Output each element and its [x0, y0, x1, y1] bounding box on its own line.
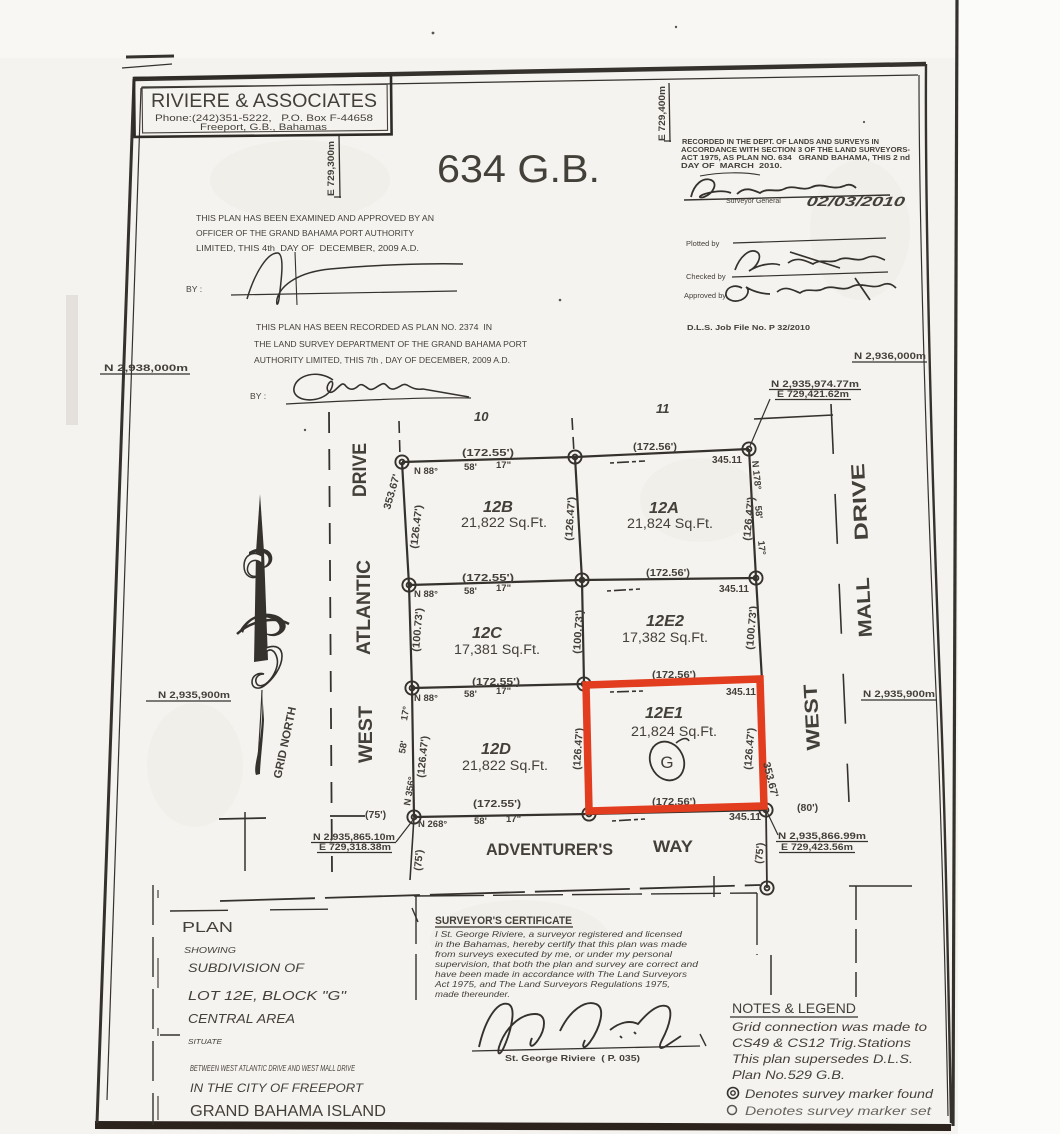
svg-text:E 729,423.56m: E 729,423.56m — [781, 842, 853, 853]
svg-text:345.11: 345.11 — [719, 583, 749, 595]
svg-text:Grid connection was made to: Grid connection was made to — [732, 1022, 928, 1034]
svg-text:SHOWING: SHOWING — [184, 946, 236, 955]
svg-text:St. George Riviere ( P. 035): St. George Riviere ( P. 035) — [505, 1053, 640, 1063]
svg-text:PLAN: PLAN — [182, 919, 233, 936]
svg-text:17": 17" — [496, 686, 511, 697]
svg-text:10: 10 — [474, 409, 489, 424]
svg-text:Approved by: Approved by — [684, 291, 726, 300]
svg-text:N 2,935,900m: N 2,935,900m — [158, 690, 230, 701]
svg-text:E 729,300m: E 729,300m — [326, 141, 336, 196]
svg-text:11: 11 — [656, 401, 670, 416]
svg-text:634 G.B.: 634 G.B. — [437, 148, 600, 191]
svg-text:N 2,935,900m: N 2,935,900m — [863, 689, 935, 700]
svg-text:D.L.S. Job File No. P 32/2010: D.L.S. Job File No. P 32/2010 — [687, 323, 810, 332]
svg-text:BETWEEN WEST ATLANTIC DRIVE AN: BETWEEN WEST ATLANTIC DRIVE AND WEST MAL… — [190, 1064, 355, 1073]
svg-text:This plan supersedes D.L.S.: This plan supersedes D.L.S. — [732, 1054, 913, 1066]
svg-text:WEST: WEST — [801, 683, 825, 750]
svg-text:Checked by: Checked by — [686, 272, 726, 281]
svg-text:58': 58' — [464, 462, 477, 473]
svg-text:ATLANTIC: ATLANTIC — [354, 560, 375, 655]
svg-text:ACT 1975, AS PLAN NO. 634 GR: ACT 1975, AS PLAN NO. 634 GRAND BAHAMA, … — [681, 155, 910, 162]
svg-text:58': 58' — [752, 505, 764, 519]
svg-text:AUTHORITY LIMITED, THIS 7th ,: AUTHORITY LIMITED, THIS 7th , DAY OF DEC… — [254, 355, 510, 365]
svg-text:THE LAND SURVEY DEPARTMENT OF: THE LAND SURVEY DEPARTMENT OF THE GRAND … — [254, 339, 528, 349]
svg-text:BY :: BY : — [250, 391, 266, 401]
svg-text:LIMITED, THIS 4th DAY OF DEC: LIMITED, THIS 4th DAY OF DECEMBER, 2009 … — [196, 243, 419, 253]
svg-text:DRIVE: DRIVE — [350, 443, 371, 497]
svg-text:BY :: BY : — [186, 284, 202, 294]
svg-text:N 88°: N 88° — [414, 466, 438, 477]
svg-text:ACCORDANCE WITH SECTION 3 OF T: ACCORDANCE WITH SECTION 3 OF THE LAND SU… — [681, 147, 911, 154]
svg-text:21,822 Sq.Ft.: 21,822 Sq.Ft. — [462, 758, 548, 773]
svg-text:58': 58' — [397, 740, 410, 755]
svg-text:E 729,318.38m: E 729,318.38m — [319, 842, 391, 853]
svg-text:12D: 12D — [481, 741, 511, 758]
svg-text:N 2,936,000m: N 2,936,000m — [854, 351, 926, 362]
svg-text:CS49 & CS12 Trig.Stations: CS49 & CS12 Trig.Stations — [732, 1038, 911, 1050]
svg-text:02/03/2010: 02/03/2010 — [805, 194, 906, 209]
svg-text:12A: 12A — [649, 500, 679, 517]
svg-text:(80'): (80') — [797, 802, 818, 814]
svg-text:LOT 12E, BLOCK "G": LOT 12E, BLOCK "G" — [188, 988, 348, 1003]
svg-text:N 268°: N 268° — [418, 819, 447, 830]
svg-text:MALL: MALL — [853, 576, 877, 637]
svg-text:RIVIERE & ASSOCIATES: RIVIERE & ASSOCIATES — [151, 91, 377, 112]
svg-text:OFFICER OF THE GRAND BAHAMA PO: OFFICER OF THE GRAND BAHAMA PORT AUTHORI… — [196, 228, 414, 238]
svg-text:RECORDED IN THE DEPT. OF LANDS: RECORDED IN THE DEPT. OF LANDS AND SURVE… — [682, 139, 879, 146]
svg-text:SITUATE: SITUATE — [188, 1037, 223, 1046]
svg-text:THIS PLAN HAS BEEN RECORDED AS: THIS PLAN HAS BEEN RECORDED AS PLAN NO. … — [256, 322, 492, 332]
svg-text:(75'): (75') — [365, 809, 386, 821]
svg-text:DAY OF MARCH 2010.: DAY OF MARCH 2010. — [681, 163, 782, 170]
svg-text:Surveyor General: Surveyor General — [726, 198, 781, 205]
svg-text:GRAND BAHAMA ISLAND: GRAND BAHAMA ISLAND — [190, 1103, 386, 1120]
svg-text:made thereunder.: made thereunder. — [435, 989, 510, 999]
svg-text:SURVEYOR'S CERTIFICATE: SURVEYOR'S CERTIFICATE — [435, 915, 572, 927]
svg-text:17,381 Sq.Ft.: 17,381 Sq.Ft. — [454, 642, 540, 657]
svg-text:I St. George Riviere, a survey: I St. George Riviere, a surveyor registe… — [435, 929, 682, 939]
svg-text:in the Bahamas, hereby certify: in the Bahamas, hereby certify that this… — [435, 939, 687, 949]
svg-text:(172.55'): (172.55') — [473, 798, 521, 810]
svg-text:from surveys executed by me, o: from surveys executed by me, or under my… — [435, 949, 673, 959]
svg-text:N 88°: N 88° — [414, 693, 438, 704]
svg-text:12B: 12B — [483, 499, 513, 516]
svg-text:Denotes survey marker set: Denotes survey marker set — [745, 1106, 932, 1118]
svg-text:17": 17" — [496, 583, 511, 594]
svg-text:(172.56'): (172.56') — [646, 567, 690, 579]
svg-text:Plotted by: Plotted by — [686, 239, 720, 248]
svg-text:Act 1975, and The Land Surveyo: Act 1975, and The Land Surveyors Regulat… — [434, 979, 670, 989]
svg-text:345.11: 345.11 — [726, 686, 756, 698]
svg-text:12C: 12C — [472, 625, 502, 642]
svg-text:DRIVE: DRIVE — [848, 463, 873, 541]
svg-text:WEST: WEST — [356, 706, 377, 763]
svg-text:N 88°: N 88° — [414, 589, 438, 600]
svg-text:(75'): (75') — [412, 849, 426, 871]
svg-text:(172.56'): (172.56') — [633, 441, 677, 453]
svg-text:CENTRAL AREA: CENTRAL AREA — [188, 1011, 295, 1026]
svg-text:21,824 Sq.Ft.: 21,824 Sq.Ft. — [627, 516, 713, 531]
svg-text:Freeport, G.B., Bahamas: Freeport, G.B., Bahamas — [200, 122, 327, 133]
svg-text:17": 17" — [496, 460, 511, 471]
svg-text:E 729,421.62m: E 729,421.62m — [777, 389, 849, 400]
svg-text:N 2,938,000m: N 2,938,000m — [104, 363, 188, 374]
svg-text:THIS PLAN HAS BEEN EXAMINED AN: THIS PLAN HAS BEEN EXAMINED AND APPROVED… — [196, 213, 434, 223]
svg-text:17°: 17° — [755, 540, 767, 556]
svg-text:SUBDIVISION OF: SUBDIVISION OF — [188, 961, 305, 975]
svg-text:21,822 Sq.Ft.: 21,822 Sq.Ft. — [461, 515, 547, 530]
svg-text:G: G — [660, 753, 673, 772]
svg-text:(172.55'): (172.55') — [462, 447, 514, 459]
svg-text:NOTES & LEGEND: NOTES & LEGEND — [732, 1000, 856, 1016]
svg-text:WAY: WAY — [653, 837, 694, 856]
svg-text:17,382 Sq.Ft.: 17,382 Sq.Ft. — [622, 630, 708, 645]
svg-text:Denotes survey marker found: Denotes survey marker found — [745, 1089, 934, 1101]
svg-text:(75'): (75') — [753, 842, 767, 864]
svg-text:58': 58' — [464, 586, 477, 597]
svg-text:58': 58' — [464, 689, 477, 700]
svg-text:17": 17" — [506, 814, 521, 825]
svg-text:have been made in accordance w: have been made in accordance with The La… — [435, 969, 688, 979]
svg-text:12E1: 12E1 — [645, 705, 683, 722]
svg-text:12E2: 12E2 — [646, 613, 684, 630]
svg-text:ADVENTURER'S: ADVENTURER'S — [486, 840, 613, 859]
svg-text:E 729,400m: E 729,400m — [657, 86, 667, 141]
svg-text:345.11: 345.11 — [729, 811, 761, 823]
svg-text:345.11: 345.11 — [712, 454, 742, 466]
svg-text:N 2,935,866.99m: N 2,935,866.99m — [778, 831, 866, 842]
svg-text:Plan No.529 G.B.: Plan No.529 G.B. — [732, 1070, 845, 1082]
svg-text:IN THE CITY OF FREEPORT: IN THE CITY OF FREEPORT — [190, 1083, 364, 1095]
svg-text:supervision, that both the pla: supervision, that both the plan and surv… — [435, 959, 698, 969]
svg-text:58': 58' — [474, 816, 487, 827]
svg-text:21,824 Sq.Ft.: 21,824 Sq.Ft. — [631, 724, 717, 739]
